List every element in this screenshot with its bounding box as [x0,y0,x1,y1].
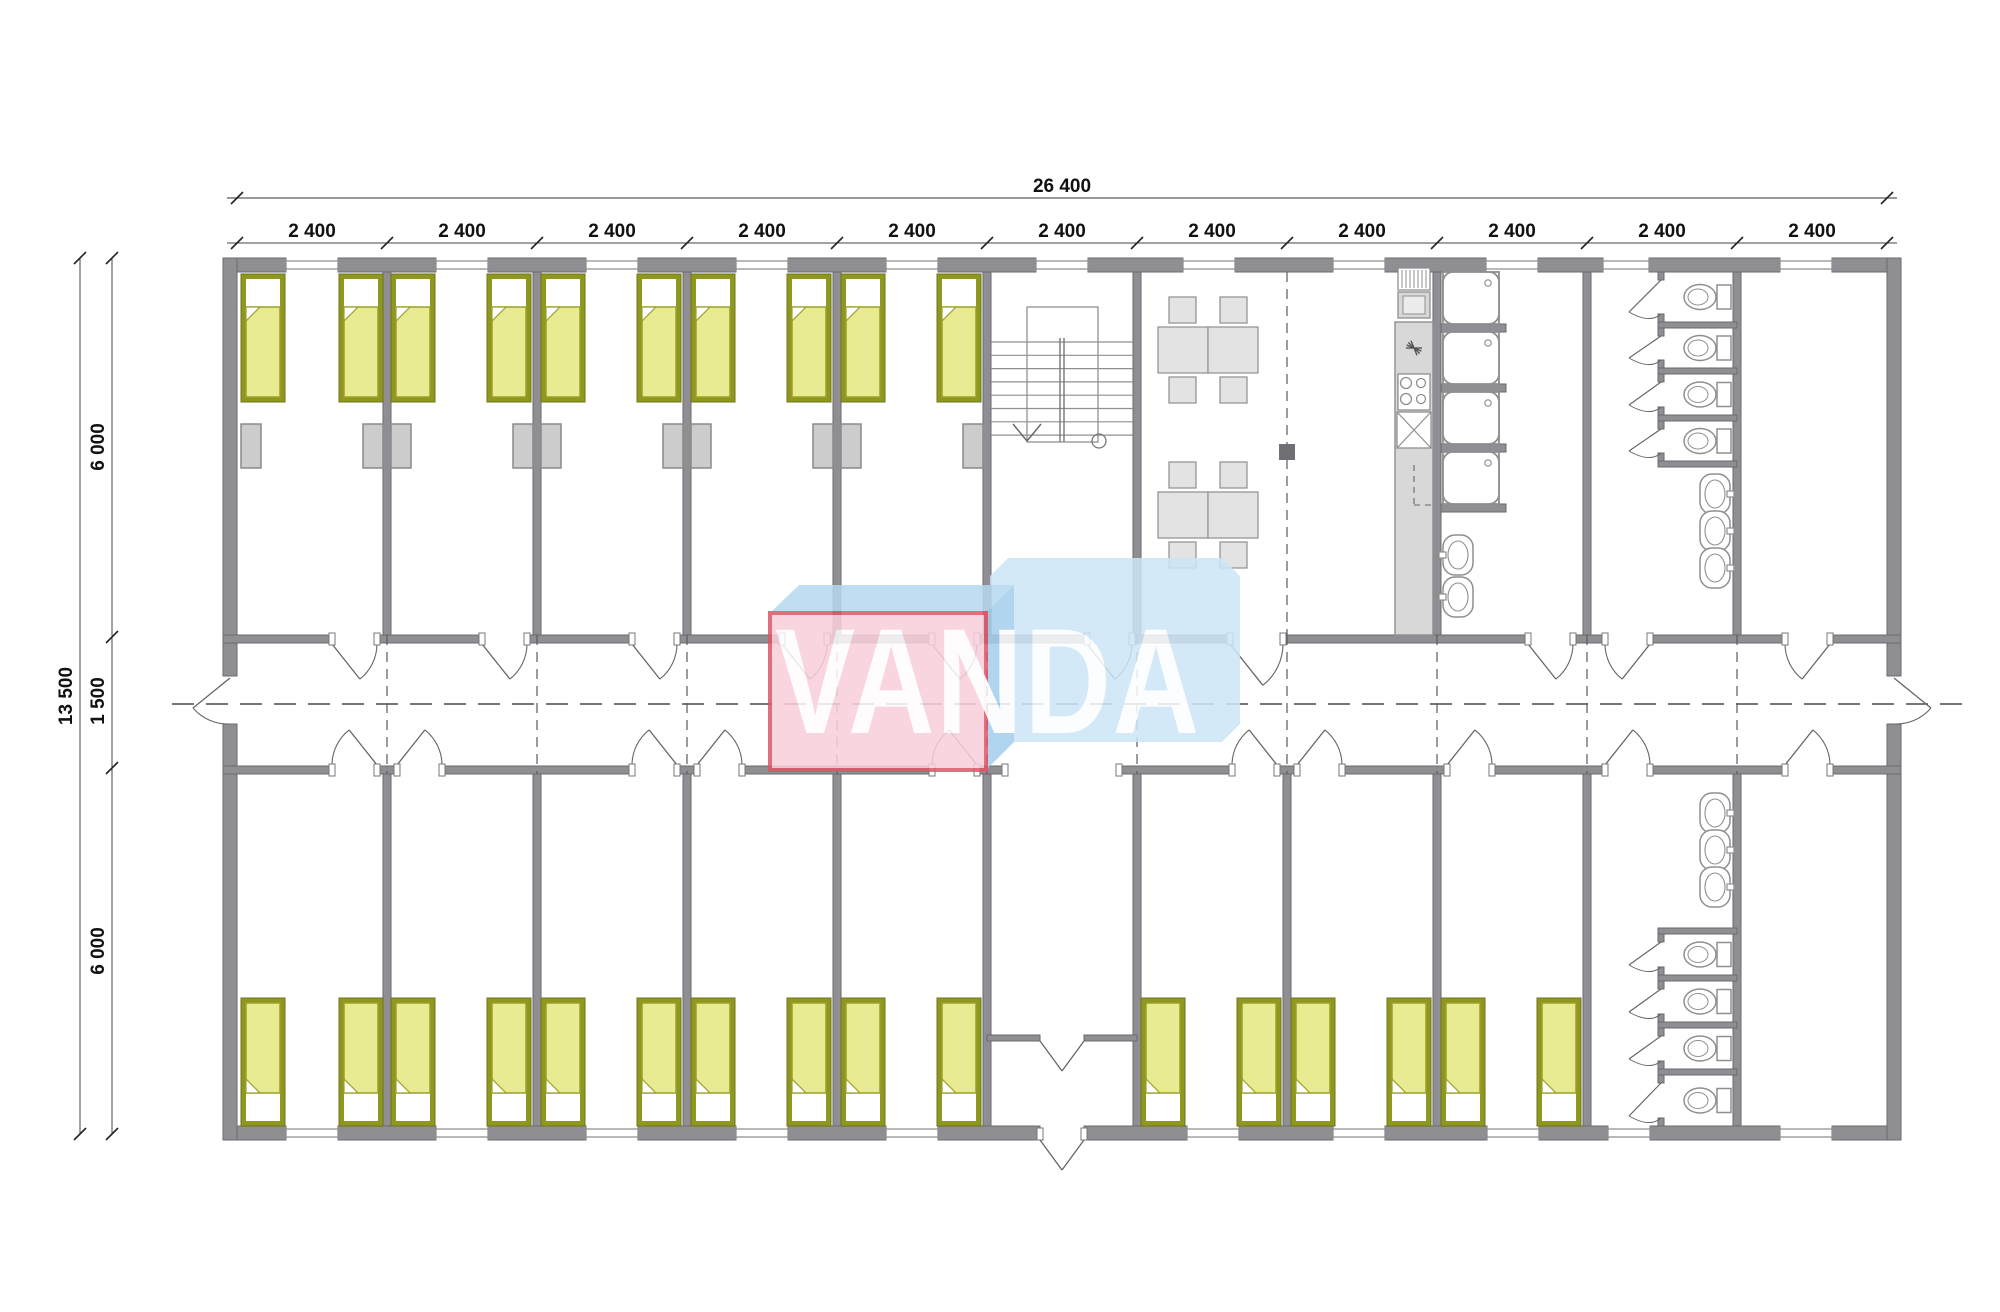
toilet-bowl [1684,989,1716,1014]
door-leaf [482,644,510,679]
door-jamb [374,633,380,645]
bed [637,998,681,1126]
door-leaf [697,730,725,765]
shower-tray [1443,392,1499,444]
bed-blanket [792,1003,826,1093]
bed [487,274,531,402]
bed [1441,998,1485,1126]
door-swing [360,644,377,679]
door-leaf [1785,730,1813,765]
exterior-wall-top [1538,258,1603,272]
door-swing [1263,644,1283,685]
bed-blanket [792,307,826,397]
stall-front-stub [1658,934,1664,942]
bed [1291,998,1335,1126]
basin-tap [1439,594,1446,600]
nightstand [813,424,833,468]
bed [787,274,831,402]
bed-blanket [1146,1003,1180,1093]
toilet-tank [1717,990,1731,1014]
stall-front-stub [1658,328,1664,336]
partition-wall [533,774,541,1126]
exterior-wall-bottom [788,1126,886,1140]
door-swing [510,644,527,679]
partition-wall [683,774,691,1126]
stall-door-leaf [1629,1083,1661,1116]
stall-door-leaf [1629,336,1661,358]
door-leaf [1622,644,1650,679]
exterior-wall-bottom [1084,1126,1187,1140]
toilet [1684,336,1731,361]
shower-partition [1441,324,1506,332]
door-jamb [329,633,335,645]
toilet [1684,382,1731,407]
window [1780,1126,1832,1140]
bed [1387,998,1431,1126]
dim-module-label: 2 400 [438,221,486,242]
wash-basin [1700,474,1734,514]
door-swing [1556,644,1573,679]
exterior-wall-bottom [1385,1126,1487,1140]
door-swing [1232,730,1249,765]
toilet-bowl [1684,336,1716,361]
entrance-door-leaf [1062,1140,1084,1170]
exterior-wall-top [938,258,1036,272]
shower-partition [1441,504,1506,512]
stall-partition [1658,975,1737,981]
door-jamb [1782,764,1788,776]
door-leaf [1528,644,1556,679]
bed [339,998,383,1126]
floor-plan-svg: 26 4002 4002 4002 4002 4002 4002 4002 40… [0,0,2000,1312]
bed-blanket [942,307,976,397]
table [1208,492,1258,538]
stall-door-leaf [1629,989,1661,1012]
stall-partition [1658,415,1737,421]
corridor-wall-bottom [1650,766,1785,774]
bed [841,274,885,402]
stall-partition [1658,1069,1737,1075]
bed-blanket [642,1003,676,1093]
exterior-wall-bottom [338,1126,436,1140]
bed [787,998,831,1126]
bed [691,274,735,402]
bed [241,998,285,1126]
partition-wall [833,272,841,635]
partition-wall [1583,774,1591,1126]
shower-tray [1443,332,1499,384]
door-jamb [1081,1128,1087,1140]
partition-wall [533,272,541,635]
door-leaf [649,730,677,765]
dining-set [1158,297,1258,403]
dim-module-label: 2 400 [738,221,786,242]
double-door-leaf [1062,1041,1084,1071]
door-jamb [394,764,400,776]
bed-blanket [696,1003,730,1093]
wash-basin [1439,577,1473,617]
double-door-leaf [1040,1041,1062,1071]
bed [487,998,531,1126]
stall-door-swing [1629,451,1661,458]
corridor-wall-top [527,635,632,643]
window [586,1126,638,1140]
stall-partition [1658,461,1737,467]
basin-tap [1727,847,1734,853]
door-jamb [1037,1128,1043,1140]
door-jamb [674,633,680,645]
exterior-wall-bottom [1650,1126,1780,1140]
shower-tray [1443,332,1499,384]
bed [937,274,981,402]
bed-blanket [1392,1003,1426,1093]
bed-blanket [492,1003,526,1093]
door-swing [660,644,677,679]
shower-partition [1441,384,1506,392]
dim-module-label: 2 400 [1038,221,1086,242]
window [286,1126,338,1140]
dim-module-label: 2 400 [1338,221,1386,242]
nightstand [841,424,861,468]
partition-wall [383,272,391,635]
window [286,258,338,272]
door-leaf [1605,730,1633,765]
table [1158,492,1208,538]
corridor-wall-top [677,635,782,643]
exterior-wall-top [638,258,736,272]
stall-door-swing [1629,1116,1661,1123]
chair [1220,297,1247,323]
dim-module-label: 2 400 [288,221,336,242]
window [436,1126,488,1140]
stall-partition [1658,322,1737,328]
kitchen-hob [1398,374,1430,410]
stall-front-stub [1658,374,1664,382]
corridor-wall-bottom [1830,766,1901,774]
shower-tray [1443,392,1499,444]
door-jamb [1280,633,1286,645]
toilet-bowl [1684,1088,1716,1113]
exterior-wall-top [488,258,586,272]
wash-basin [1700,548,1734,588]
corridor-wall-top [1830,635,1901,643]
door-jamb [524,633,530,645]
bed [391,274,435,402]
corridor-wall-bottom [223,766,332,774]
nightstand [513,424,533,468]
partition-wall [1433,774,1441,1126]
toilet-tank [1717,1037,1731,1061]
door-leaf [332,644,360,679]
shower-tray [1443,452,1499,504]
shower-tray [1443,272,1499,324]
wash-basin [1700,830,1734,870]
door-leaf [632,644,660,679]
nightstand [391,424,411,468]
dim-module-label: 2 400 [1788,221,1836,242]
corridor-wall-bottom [1342,766,1447,774]
partition-wall [983,272,991,635]
door-jamb [1782,633,1788,645]
partition-wall [683,272,691,635]
basin-tap [1727,491,1734,497]
door-jamb [1602,764,1608,776]
door-jamb [739,764,745,776]
stair-post [1092,434,1106,448]
basin-tap [1727,884,1734,890]
door-jamb [374,764,380,776]
dining-set [1158,462,1258,568]
stall-front-stub [1658,1075,1664,1083]
bed-blanket [942,1003,976,1093]
stall-partition [1658,368,1737,374]
partition-wall [833,774,841,1126]
toilet-tank [1717,383,1731,407]
window [1036,258,1088,272]
exterior-wall-right [1887,724,1901,1140]
door-jamb [1827,764,1833,776]
stall-door-swing [1629,1059,1661,1066]
door-jamb [1444,764,1450,776]
exterior-wall-bottom [1539,1126,1608,1140]
basin-tap [1727,810,1734,816]
door-jamb [1274,764,1280,776]
dim-upper-depth-label: 6 000 [88,423,109,471]
exterior-wall-bottom [1239,1126,1333,1140]
exterior-wall-right [1887,258,1901,676]
toilet [1684,1088,1731,1113]
bed [541,998,585,1126]
toilet [1684,285,1731,310]
toilet [1684,942,1731,967]
bed-blanket [246,1003,280,1093]
toilet-bowl [1684,942,1716,967]
door-jamb [629,764,635,776]
door-jamb [439,764,445,776]
door-jamb [1339,764,1345,776]
bed [841,998,885,1126]
corridor-wall-top [377,635,482,643]
window [886,258,938,272]
column [1279,444,1295,460]
door-jamb [1116,764,1122,776]
corridor-wall-top [223,635,332,643]
door-swing [1633,730,1650,765]
chair [1220,377,1247,403]
bed-blanket [344,307,378,397]
exterior-wall-top [1649,258,1780,272]
corridor-wall-bottom [1119,766,1232,774]
door-jamb [329,764,335,776]
window [1187,1126,1239,1140]
toilet-bowl [1684,382,1716,407]
door-jamb [674,764,680,776]
corridor-wall-top [1650,635,1785,643]
toilet-bowl [1684,429,1716,454]
basin-tap [1727,565,1734,571]
stall-door-leaf [1629,280,1661,312]
partition-wall [1283,774,1291,1126]
bed-blanket [642,307,676,397]
stall-door-swing [1629,1012,1661,1019]
window [736,1126,788,1140]
door-leaf [349,730,377,765]
exterior-wall-top [338,258,436,272]
exterior-wall-top [1088,258,1183,272]
exterior-wall-bottom [638,1126,736,1140]
partition-wall [1433,272,1441,635]
chair [1169,297,1196,323]
entrance-door-leaf [1040,1140,1062,1170]
exterior-wall-top [788,258,886,272]
dim-total-height-label: 13 500 [56,667,77,725]
bed-blanket [1296,1003,1330,1093]
door-jamb [1229,764,1235,776]
chair [1169,462,1196,488]
door-swing [1605,644,1622,679]
shower-tray [1443,452,1499,504]
wash-basin [1700,793,1734,833]
bed [391,998,435,1126]
chair [1169,377,1196,403]
vestibule-wall [987,1035,1040,1041]
window [1333,1126,1385,1140]
nightstand [241,424,261,468]
nightstand [541,424,561,468]
partition-wall [983,774,991,1126]
door-jamb [694,764,700,776]
door-leaf [1447,730,1475,765]
corridor-wall-top [1573,635,1605,643]
bed [1237,998,1281,1126]
toilet-tank [1717,336,1731,360]
logo-text: VANDA [775,597,1201,765]
window [1486,258,1538,272]
door-swing [1785,644,1802,679]
door-swing [193,708,230,724]
dim-module-label: 2 400 [1188,221,1236,242]
nightstand [691,424,711,468]
partition-wall [383,774,391,1126]
bed [241,274,285,402]
stall-door-leaf [1629,429,1661,451]
door-leaf [1297,730,1325,765]
bed-blanket [846,307,880,397]
door-swing [332,730,349,765]
floor-plan: 26 4002 4002 4002 4002 4002 4002 4002 40… [0,0,2000,1312]
window [1603,258,1649,272]
door-jamb [1647,633,1653,645]
door-swing [1813,730,1830,765]
stall-partition [1658,928,1737,934]
window [1608,1126,1650,1140]
door-jamb [479,633,485,645]
door-leaf [397,730,425,765]
dim-corridor-label: 1 500 [88,677,109,725]
toilet [1684,429,1731,454]
stall-door-leaf [1629,382,1661,405]
dim-module-label: 2 400 [1638,221,1686,242]
toilet-tank [1717,285,1731,309]
toilet [1684,1036,1731,1061]
dim-module-label: 2 400 [888,221,936,242]
window [1780,258,1832,272]
stall-door-leaf [1629,1036,1661,1059]
door-jamb [1602,633,1608,645]
bed [541,274,585,402]
exterior-wall-left [223,258,237,676]
stall-door-leaf [1629,942,1661,965]
bed-blanket [344,1003,378,1093]
dim-module-label: 2 400 [588,221,636,242]
bed-blanket [546,307,580,397]
stall-door-swing [1629,358,1661,365]
window [1487,1126,1539,1140]
nightstand [363,424,383,468]
bed [937,998,981,1126]
toilet-tank [1717,1089,1731,1113]
door-jamb [629,633,635,645]
toilet [1684,989,1731,1014]
dim-module-label: 2 400 [1488,221,1536,242]
vestibule-wall [1084,1035,1137,1041]
stall-front-stub [1658,1028,1664,1036]
door-jamb [1525,633,1531,645]
door-jamb [1294,764,1300,776]
door-leaf [1802,644,1830,679]
window [1183,258,1235,272]
toilet-tank [1717,429,1731,453]
window [436,258,488,272]
stall-door-swing [1629,965,1661,972]
window [586,258,638,272]
corridor-wall-bottom [1492,766,1605,774]
shower-partition [1441,444,1506,452]
table [1158,327,1208,373]
bed-blanket [1446,1003,1480,1093]
door-swing [725,730,742,765]
bed-blanket [546,1003,580,1093]
shower-tray [1443,272,1499,324]
vanda-logo: VANDA [770,558,1240,770]
door-swing [632,730,649,765]
nightstand [963,424,983,468]
corridor-wall-top [1283,635,1528,643]
bed-blanket [1242,1003,1276,1093]
stall-front-stub [1658,981,1664,989]
bed-blanket [396,307,430,397]
partition-wall [1133,774,1141,1126]
toilet-bowl [1684,1036,1716,1061]
wash-basin [1700,867,1734,907]
stall-partition [1658,1022,1737,1028]
basin-tap [1439,552,1446,558]
bed-blanket [696,307,730,397]
door-jamb [1002,764,1008,776]
window [886,1126,938,1140]
door-jamb [1827,633,1833,645]
basin-tap [1727,528,1734,534]
door-jamb [1489,764,1495,776]
exterior-wall-bottom [938,1126,1040,1140]
wash-basin [1439,535,1473,575]
door-jamb [1570,633,1576,645]
dim-lower-depth-label: 6 000 [88,927,109,975]
table [1208,327,1258,373]
partition-wall [1583,272,1591,635]
exterior-wall-bottom [488,1126,586,1140]
bed [1537,998,1581,1126]
